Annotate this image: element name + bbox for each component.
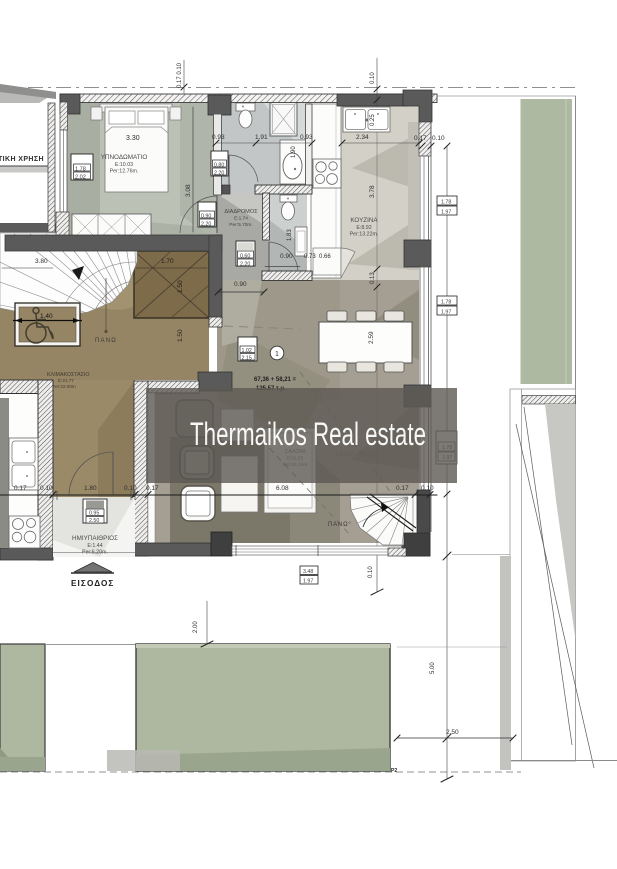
- svg-text:Per:6.20m.: Per:6.20m.: [82, 550, 108, 556]
- svg-text:1.97: 1.97: [441, 310, 451, 316]
- svg-text:0.66: 0.66: [319, 254, 331, 260]
- svg-text:2.59: 2.59: [368, 331, 375, 344]
- svg-text:0.17: 0.17: [414, 135, 427, 142]
- svg-text:ΚΟΥΖΙΝΑ: ΚΟΥΖΙΝΑ: [350, 217, 378, 224]
- svg-text:67,36 + 58,21 =: 67,36 + 58,21 =: [254, 377, 297, 383]
- svg-text:3.08: 3.08: [185, 184, 192, 197]
- svg-text:0.60: 0.60: [240, 254, 250, 260]
- svg-text:0.95: 0.95: [89, 511, 99, 517]
- svg-text:0.25: 0.25: [370, 114, 376, 126]
- svg-text:3.30: 3.30: [126, 135, 140, 142]
- svg-text:2.50: 2.50: [89, 518, 99, 524]
- svg-text:Per:22.00m: Per:22.00m: [52, 384, 76, 389]
- svg-text:2.50: 2.50: [446, 729, 459, 736]
- svg-text:Thermaikos Real estate: Thermaikos Real estate: [190, 416, 426, 452]
- svg-text:ΤΙΚΗ ΧΡΗΣΗ: ΤΙΚΗ ΧΡΗΣΗ: [0, 156, 44, 163]
- svg-text:0.80: 0.80: [214, 163, 224, 169]
- svg-text:6.08: 6.08: [276, 485, 289, 492]
- svg-text:0.93: 0.93: [212, 134, 225, 141]
- svg-text:3.48: 3.48: [303, 569, 313, 575]
- svg-text:1.90: 1.90: [291, 146, 297, 158]
- svg-text:2.00: 2.00: [193, 621, 199, 633]
- svg-text:0.73: 0.73: [304, 254, 316, 260]
- svg-text:1: 1: [275, 351, 279, 358]
- svg-text:ΔΙΑΔΡΟΜΟΣ: ΔΙΑΔΡΟΜΟΣ: [224, 209, 258, 215]
- svg-text:0.10: 0.10: [421, 485, 434, 492]
- svg-text:1.91: 1.91: [255, 134, 268, 141]
- svg-text:1.83: 1.83: [287, 229, 293, 241]
- svg-text:2.02: 2.02: [75, 175, 86, 181]
- svg-text:Ε:21.77: Ε:21.77: [58, 378, 74, 383]
- svg-text:1.02: 1.02: [242, 348, 252, 354]
- svg-text:1.50: 1.50: [177, 329, 184, 342]
- svg-text:3.80: 3.80: [35, 258, 48, 265]
- svg-text:0.13: 0.13: [370, 272, 376, 284]
- svg-text:ΗΜΙΥΠΑΙΘΡΙΟΣ: ΗΜΙΥΠΑΙΘΡΙΟΣ: [72, 535, 118, 542]
- svg-text:0.17: 0.17: [14, 485, 27, 492]
- svg-text:Ε:1.74: Ε:1.74: [234, 216, 248, 222]
- svg-text:0.10: 0.10: [40, 485, 53, 492]
- svg-text:0.90: 0.90: [280, 253, 293, 260]
- svg-text:1.97: 1.97: [303, 579, 313, 585]
- svg-text:2.15: 2.15: [242, 356, 252, 362]
- svg-text:Ε:10.03: Ε:10.03: [115, 162, 133, 168]
- svg-text:ΠΑΝΩ°: ΠΑΝΩ°: [328, 522, 352, 528]
- svg-text:1.50: 1.50: [177, 280, 184, 293]
- svg-text:0.10: 0.10: [370, 72, 376, 84]
- svg-text:1.78: 1.78: [441, 200, 451, 206]
- svg-text:P2: P2: [391, 768, 397, 774]
- svg-text:1.78: 1.78: [441, 300, 451, 306]
- svg-text:0.10: 0.10: [124, 485, 137, 492]
- svg-text:ΠΑΝΩ: ΠΑΝΩ: [95, 338, 117, 344]
- svg-text:Per:5.70m.: Per:5.70m.: [229, 222, 252, 228]
- svg-text:2.20: 2.20: [201, 222, 211, 228]
- svg-text:0.17 0.10: 0.17 0.10: [177, 62, 183, 88]
- svg-text:1.78: 1.78: [75, 167, 86, 173]
- svg-text:Ε:1.44: Ε:1.44: [87, 543, 102, 549]
- svg-text:Per:12.76m.: Per:12.76m.: [110, 169, 139, 175]
- svg-text:0.17: 0.17: [146, 485, 159, 492]
- svg-text:0.17: 0.17: [396, 485, 409, 492]
- svg-text:0.90: 0.90: [234, 281, 247, 288]
- svg-text:5.00: 5.00: [430, 662, 436, 674]
- svg-text:Ε:8.92: Ε:8.92: [356, 225, 371, 231]
- svg-text:2.20: 2.20: [214, 171, 224, 177]
- svg-text:1.80: 1.80: [84, 485, 97, 492]
- svg-text:0.93: 0.93: [300, 134, 313, 141]
- svg-text:2.34: 2.34: [356, 134, 369, 141]
- svg-text:0.90: 0.90: [201, 214, 211, 220]
- svg-text:2.20: 2.20: [240, 262, 250, 268]
- svg-text:0.10: 0.10: [432, 135, 445, 142]
- svg-text:ΥΠΝΟΔΩΜΑΤΙΟ: ΥΠΝΟΔΩΜΑΤΙΟ: [101, 154, 148, 161]
- svg-text:ΕΙΣΟΔΟΣ: ΕΙΣΟΔΟΣ: [71, 579, 114, 588]
- svg-text:1.97: 1.97: [441, 210, 451, 216]
- svg-text:Per:13.22m.: Per:13.22m.: [350, 232, 379, 238]
- svg-text:0.10: 0.10: [368, 566, 374, 578]
- svg-text:1.70: 1.70: [161, 258, 174, 265]
- svg-text:3.78: 3.78: [369, 185, 376, 198]
